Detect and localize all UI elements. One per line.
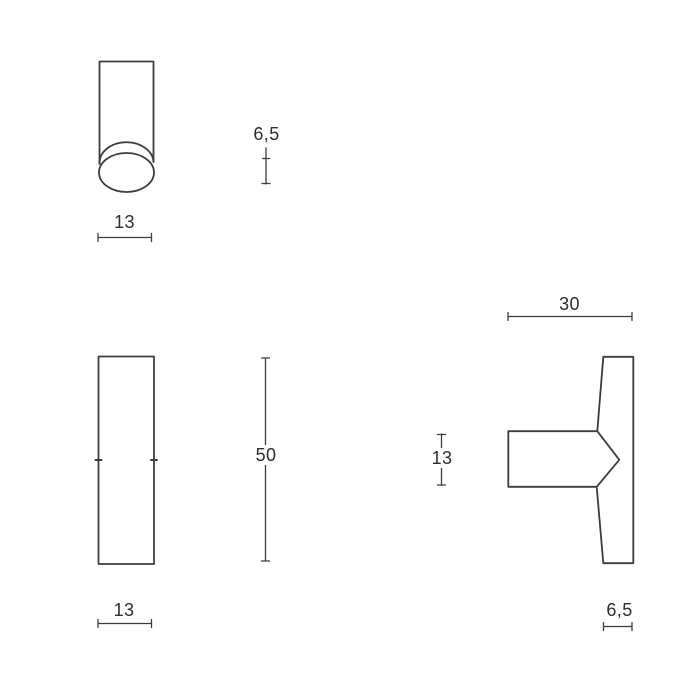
dim-line-top-width [98,234,152,242]
dim-label-side-depth: 30 [559,295,580,313]
side-view-cone-lines [597,431,620,487]
front-view-bar [96,357,158,565]
dim-label-edge-thickness: 6,5 [606,601,632,619]
drawing-linework [0,0,700,700]
dim-line-dome-height [262,148,270,184]
dim-label-front-height: 50 [253,445,280,465]
front-view-outline [99,357,155,565]
side-view-t-profile [508,357,633,563]
top-view-end-ellipse [99,153,154,192]
technical-drawing-canvas: 13 6,5 50 13 30 13 6,5 [0,0,700,700]
dim-line-side-depth [508,313,632,321]
top-view-cylinder [99,62,154,193]
dim-line-edge-thickness [604,623,633,631]
dim-label-front-width: 13 [114,601,135,619]
dim-label-top-width: 13 [114,213,135,231]
dim-line-front-width [98,620,152,628]
dim-label-neck-height: 13 [429,448,456,468]
dim-label-dome-height: 6,5 [253,125,279,143]
dimension-lines [98,148,632,631]
side-view-outline [508,357,633,563]
